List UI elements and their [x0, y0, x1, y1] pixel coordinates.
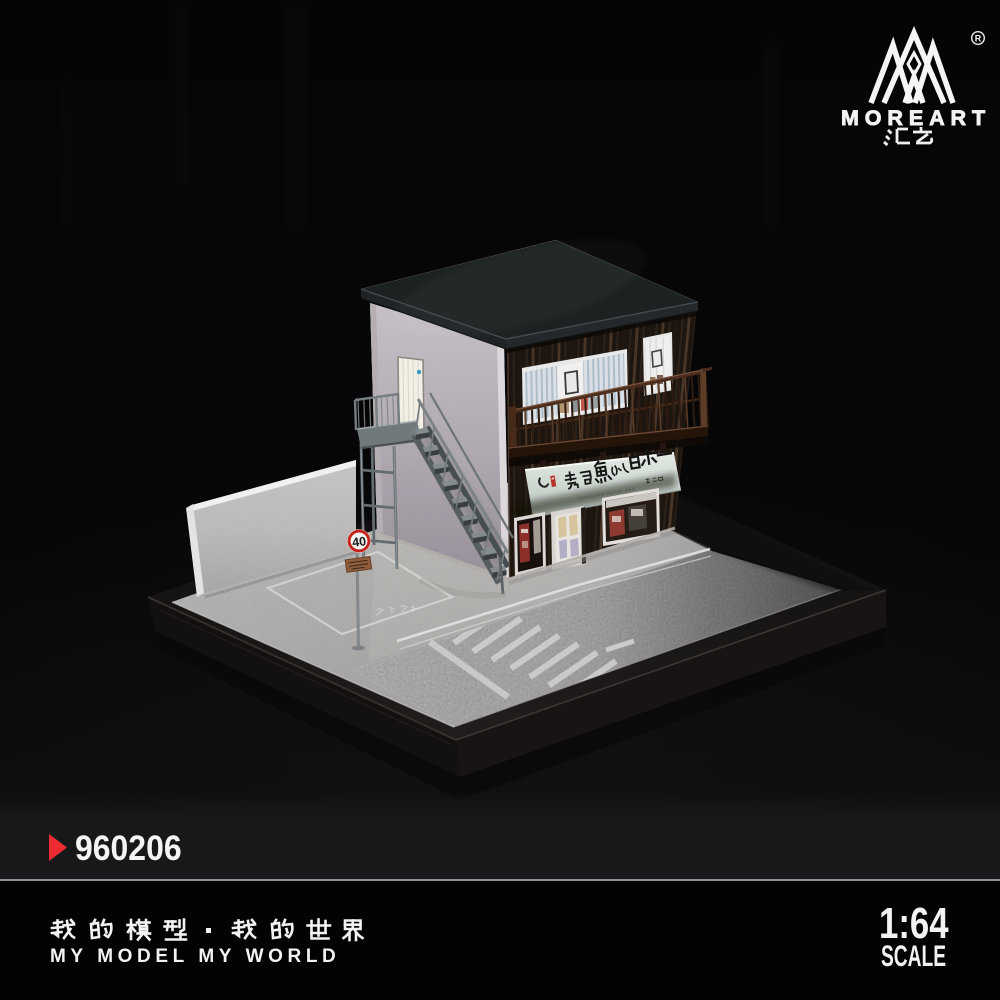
svg-text:960206: 960206: [75, 828, 182, 868]
svg-text:R: R: [975, 34, 982, 44]
svg-text:MY MODEL MY WORLD: MY MODEL MY WORLD: [50, 946, 340, 967]
svg-text:SCALE: SCALE: [881, 940, 946, 973]
svg-text:MOREART: MOREART: [841, 106, 991, 130]
svg-text:40: 40: [351, 534, 367, 550]
